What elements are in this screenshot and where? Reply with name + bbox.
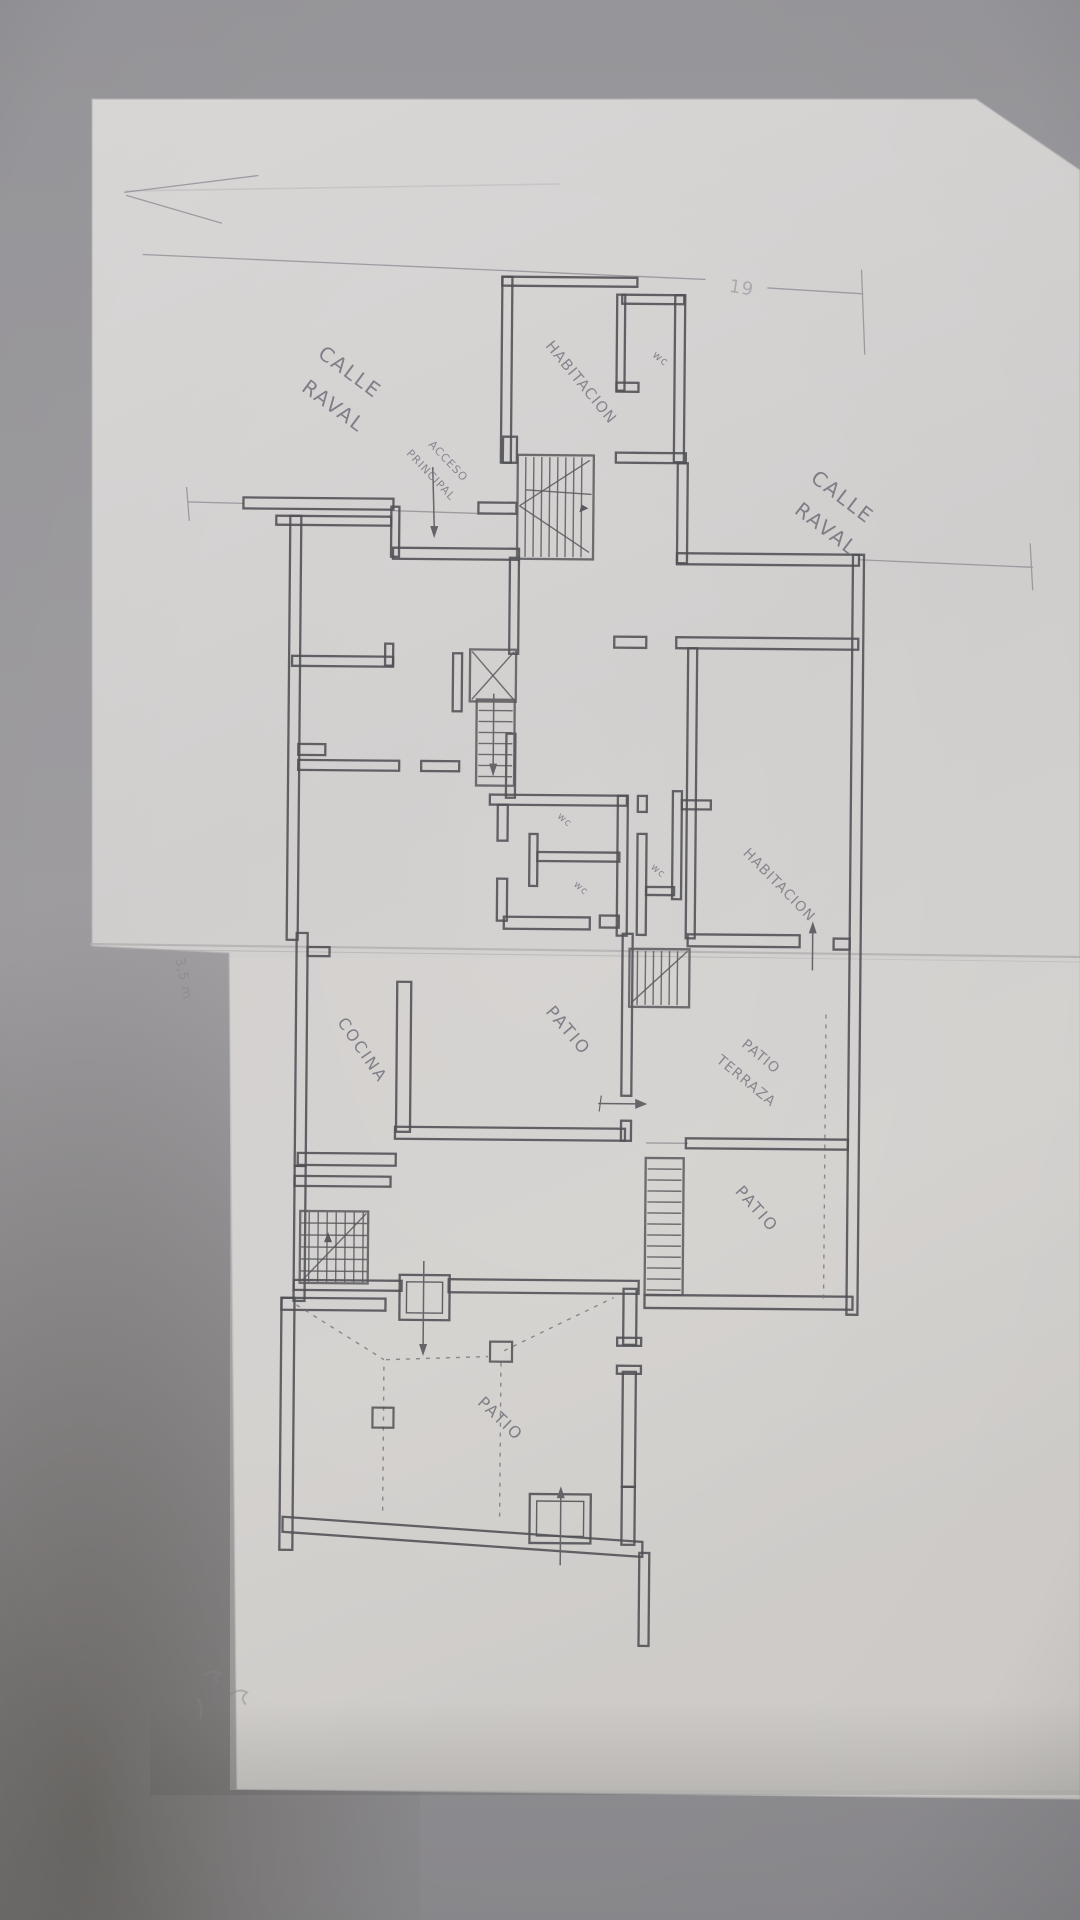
vignette-overlay bbox=[0, 0, 1080, 1920]
photo-of-floor-plan: { "document": { "kind": "hand-drawn penc… bbox=[0, 0, 1080, 1920]
